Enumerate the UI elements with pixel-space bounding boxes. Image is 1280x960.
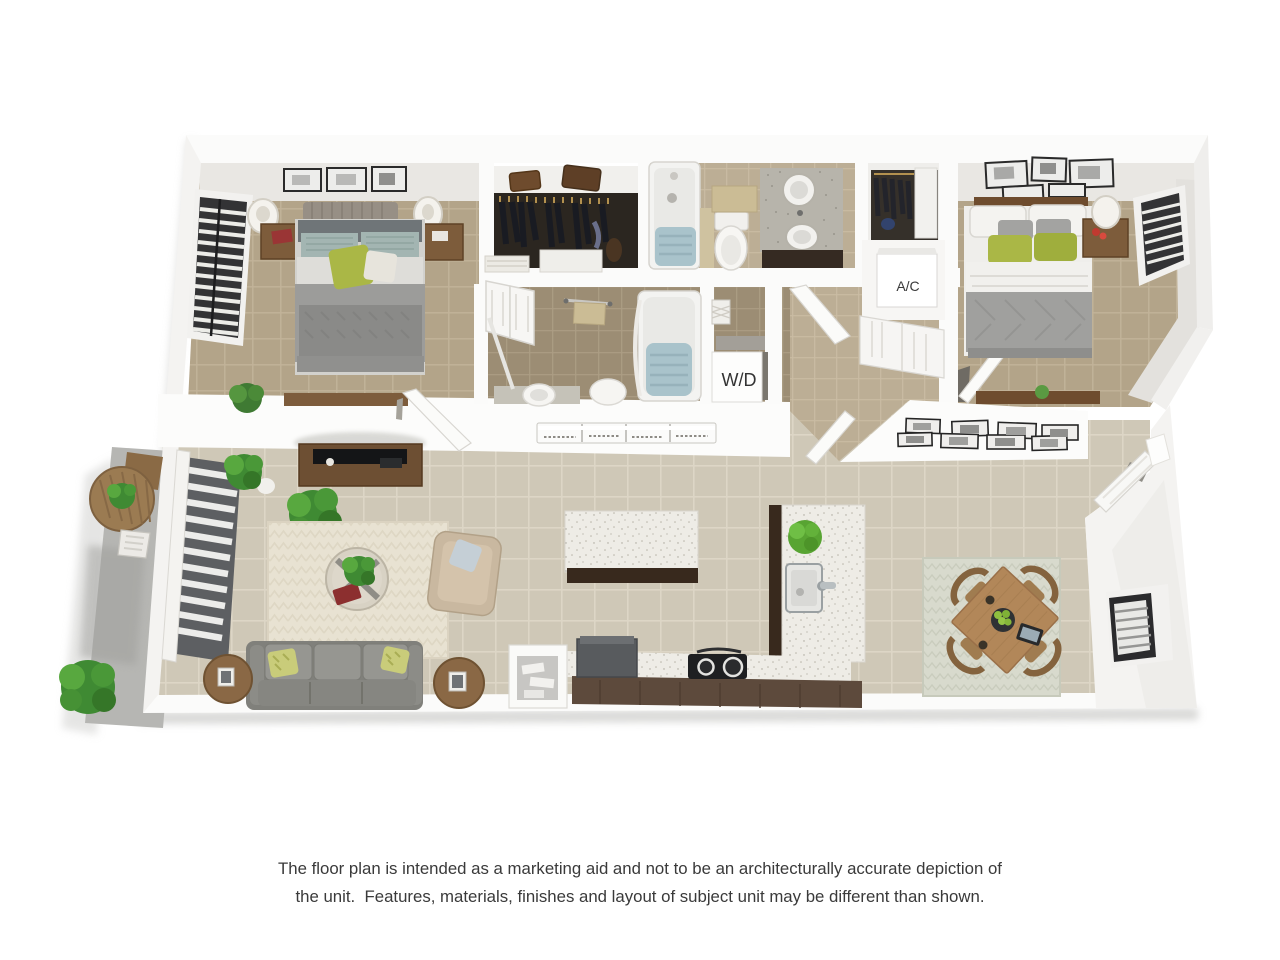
svg-text:A/C: A/C bbox=[896, 278, 919, 294]
svg-text:W/D: W/D bbox=[722, 370, 757, 390]
